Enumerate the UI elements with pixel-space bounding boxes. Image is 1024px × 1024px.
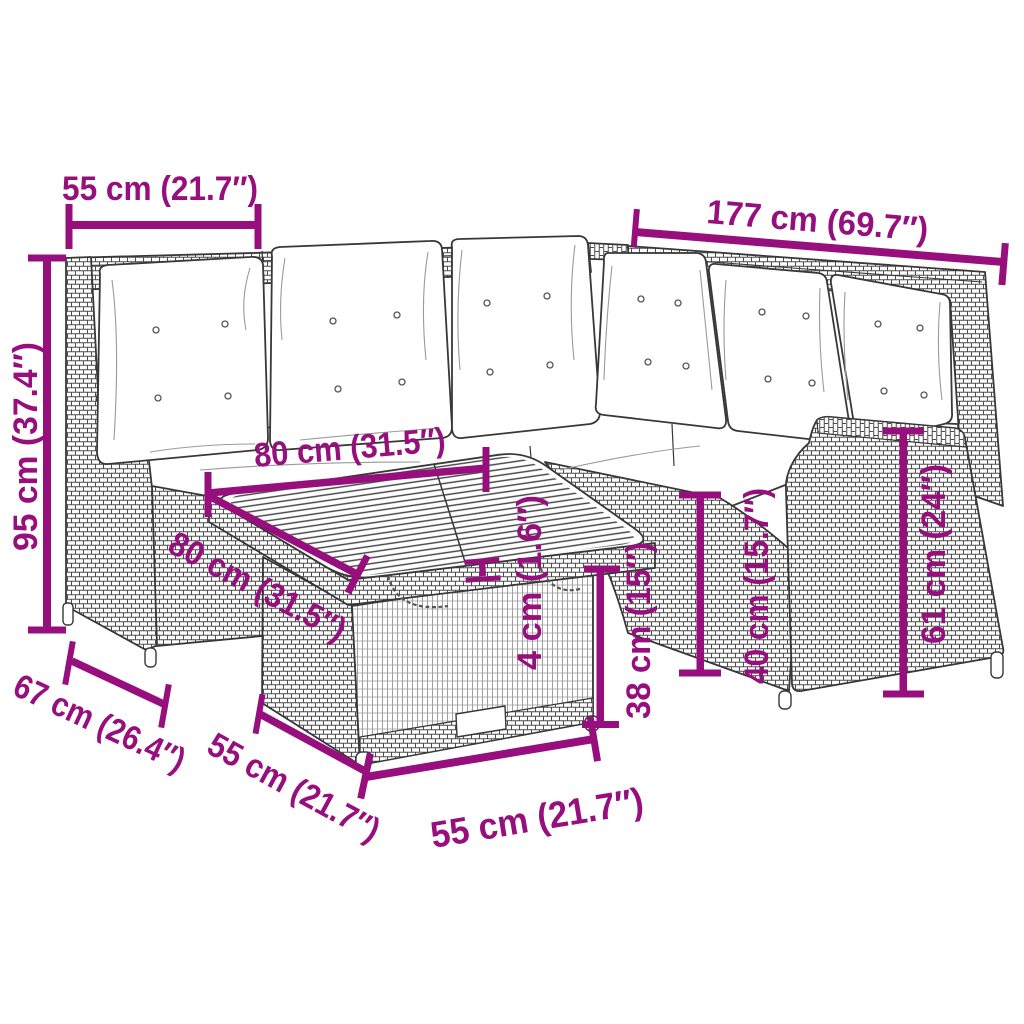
svg-text:61 cm (24″): 61 cm (24″) xyxy=(915,464,953,644)
svg-text:38 cm (15″): 38 cm (15″) xyxy=(620,542,658,719)
svg-text:95 cm (37.4″): 95 cm (37.4″) xyxy=(7,342,45,551)
svg-text:4 cm (1.6″): 4 cm (1.6″) xyxy=(511,495,549,670)
svg-text:55 cm (21.7″): 55 cm (21.7″) xyxy=(62,170,258,208)
svg-text:40 cm (15.7″): 40 cm (15.7″) xyxy=(738,488,776,684)
